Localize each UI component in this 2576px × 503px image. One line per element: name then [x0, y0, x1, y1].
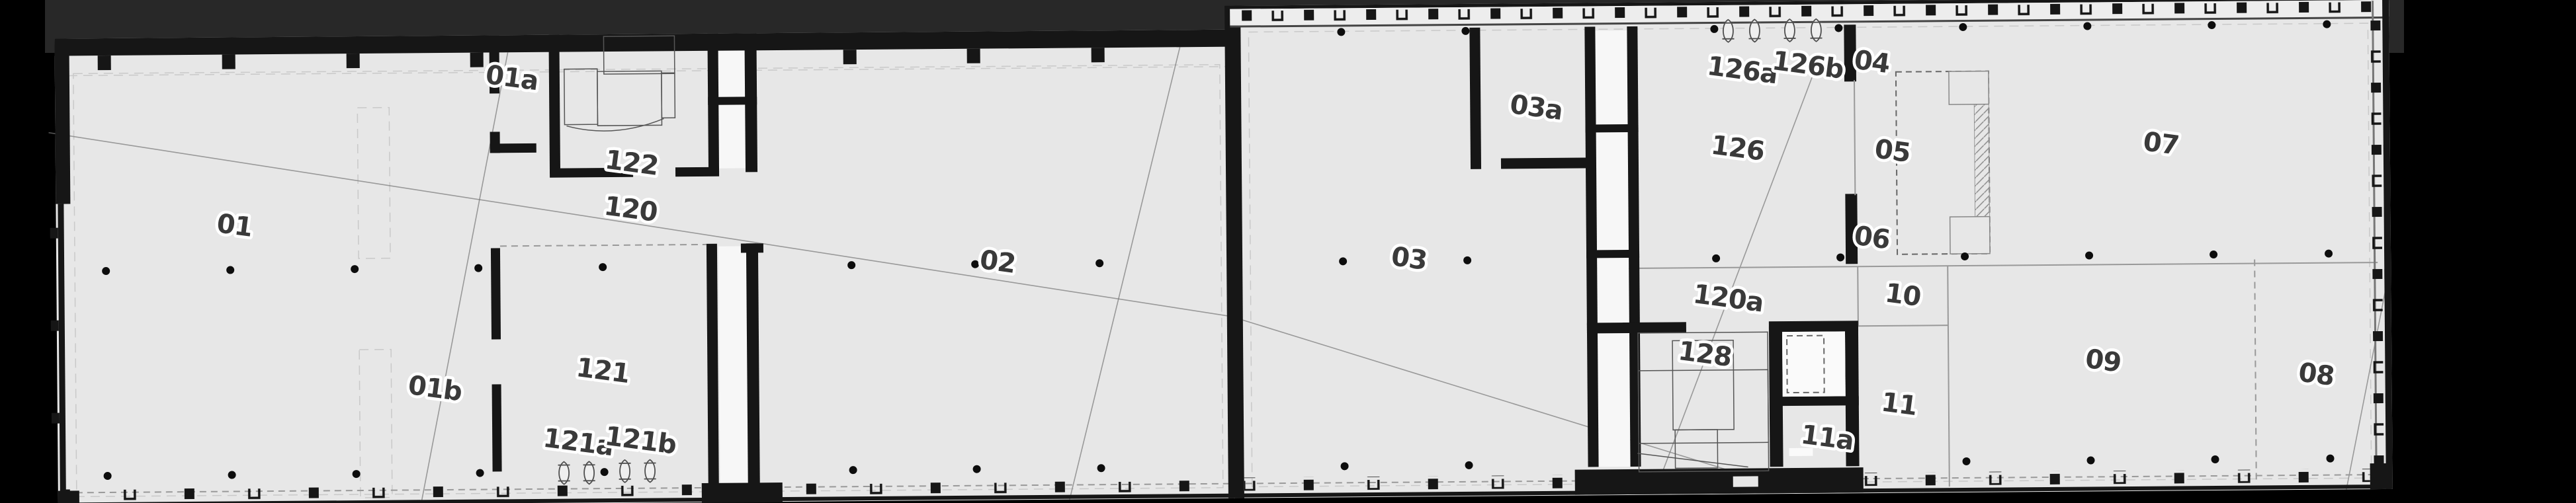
toilet-icon: [1722, 20, 1734, 42]
wall-shaft-left-lower: [707, 244, 719, 495]
toilet-icon: [1748, 19, 1760, 42]
toilet-icon: [583, 461, 595, 484]
room-label-04: 04: [1852, 45, 1891, 80]
room-label-05: 05: [1873, 134, 1912, 169]
room-label-06: 06: [1852, 221, 1891, 256]
plan-drawing: 01 01a 01b 122 120 121 121a 121b 02 03 0…: [48, 0, 2393, 503]
floor-plan-canvas: 01 01a 01b 122 120 121 121a 121b 02 03 0…: [0, 0, 2576, 503]
toilet-icon: [644, 460, 656, 483]
left-exterior-wall: [54, 38, 70, 204]
wall-01a-bottom: [490, 143, 537, 153]
room-label-11: 11: [1879, 387, 1918, 422]
toilet-icon: [1810, 19, 1822, 42]
room-label-09: 09: [2084, 344, 2123, 379]
room-label-07: 07: [2141, 126, 2180, 161]
toilet-icon: [619, 460, 630, 483]
wall-02-left-lower: [746, 243, 760, 494]
floor-plan-screenshot: 01 01a 01b 122 120 121 121a 121b 02 03 0…: [0, 0, 2576, 503]
wall-02-left-upper: [744, 33, 757, 172]
wall-128-top: [1623, 322, 1686, 333]
room-label-01: 01: [215, 208, 254, 243]
room-label-08: 08: [2297, 357, 2336, 392]
room-label-10: 10: [1883, 278, 1922, 313]
toilet-icon: [558, 462, 570, 484]
room-label-03: 03: [1389, 241, 1428, 276]
room-label-02: 02: [978, 245, 1017, 280]
wall-03a-bottom: [1501, 157, 1594, 169]
wall-03a-left: [1469, 28, 1481, 169]
toilet-icon: [1783, 19, 1795, 42]
wall-122-left: [548, 35, 560, 174]
building-footprint: [54, 0, 2393, 503]
